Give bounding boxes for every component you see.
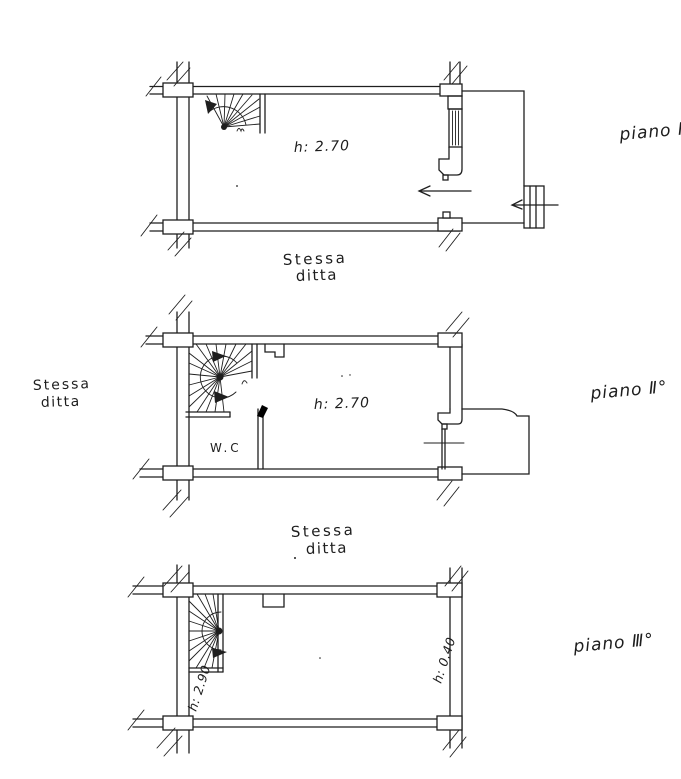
ink-speck [236, 185, 238, 187]
entry-arrow-piano-1 [512, 200, 558, 209]
chimney-notch-piano-2 [265, 344, 284, 357]
column-block [440, 84, 462, 96]
stair-direction-arrowhead [212, 351, 226, 362]
floor-label-piano-1: piano I [618, 119, 681, 145]
stair-direction-arrowhead [205, 100, 217, 114]
ink-speck [349, 374, 350, 375]
wall-break-marks-piano-2 [133, 295, 469, 517]
column-block [443, 212, 450, 218]
left-caption-stessa: Stessa [33, 376, 92, 394]
entry-extension-piano-1 [462, 91, 544, 228]
entry-box [524, 186, 544, 228]
column-block [163, 583, 193, 597]
ink-speck [341, 375, 343, 377]
walls-piano-3 [133, 565, 462, 753]
column-block [437, 583, 462, 597]
column-block [163, 716, 193, 730]
left-caption-ditta: ditta [41, 394, 81, 411]
floor-label-piano-2: piano Ⅱ° [589, 377, 669, 404]
ink-speck [294, 557, 296, 559]
duct-piano-2 [424, 409, 464, 469]
column-block [438, 333, 462, 347]
floor-plan-piano-2: h: 2.70 W.C Stessa ditta Stessa ditta pi… [33, 295, 669, 558]
right-height-label: h: 0.40 [430, 635, 459, 685]
bottom-caption-ditta: ditta [306, 539, 349, 558]
column-block [163, 466, 193, 480]
ink-speck [319, 657, 321, 659]
floor-label-piano-3: piano Ⅲ° [572, 630, 655, 657]
spiral-stair-piano-3 [189, 594, 227, 672]
column-block [163, 333, 193, 347]
room-height-label: h: 2.70 [314, 395, 371, 413]
walls-piano-2 [140, 312, 462, 500]
room-height-label: h: 2.70 [294, 138, 351, 156]
chimney-notch-piano-3 [263, 594, 284, 607]
stair-mark [242, 381, 247, 384]
balcony-outline-piano-2 [462, 409, 529, 474]
floor-plan-piano-3: h: 2.90 h: 0.40 piano Ⅲ° [128, 557, 655, 757]
duct-piano-1 [439, 96, 462, 180]
spiral-stair-piano-1 [205, 94, 265, 133]
direction-arrow-piano-1 [419, 186, 471, 196]
column-block [163, 220, 193, 234]
column-block [437, 716, 462, 730]
floor-plan-piano-1: h: 2.70 Stessa ditta piano I [141, 62, 681, 285]
stair-mark [237, 129, 244, 132]
wc-label: W.C [210, 441, 242, 455]
floor-plan-sheet: h: 2.70 Stessa ditta piano I [0, 0, 681, 779]
spiral-stair-piano-2 [186, 344, 257, 417]
wc-partition-piano-2 [257, 405, 268, 469]
column-block [438, 218, 462, 231]
column-block [163, 83, 193, 97]
caption-ditta: ditta [296, 266, 339, 285]
drawing-canvas: h: 2.70 Stessa ditta piano I [0, 0, 681, 779]
